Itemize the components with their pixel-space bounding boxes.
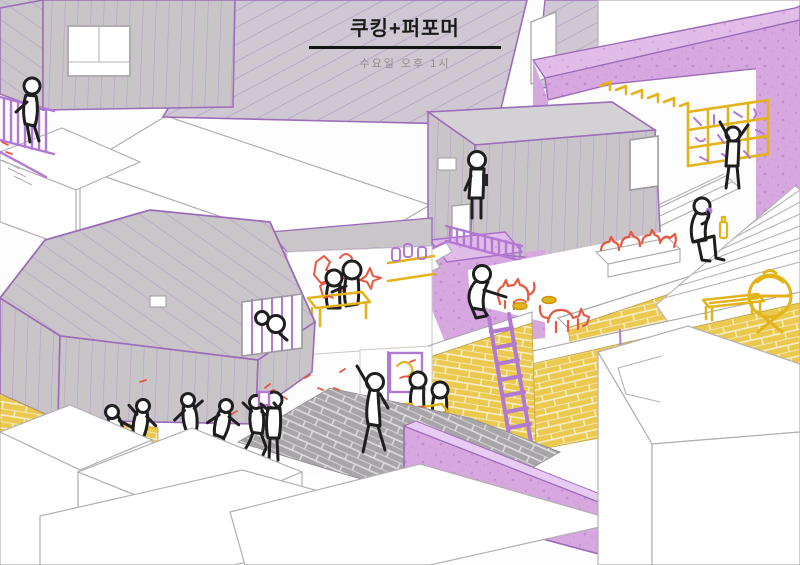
window xyxy=(630,136,658,190)
title-block: 쿠킹+퍼포머 수요일 오후 1시 xyxy=(303,17,507,71)
title-underline xyxy=(309,46,501,49)
poster-title: 쿠킹+퍼포머 xyxy=(303,17,507,41)
barred-window xyxy=(242,294,302,356)
drink-bottle xyxy=(720,217,727,238)
poster: 쿠킹+퍼포머 수요일 오후 1시 xyxy=(0,0,800,565)
poster-subtitle: 수요일 오후 1시 xyxy=(303,55,507,71)
illustration xyxy=(0,0,800,565)
